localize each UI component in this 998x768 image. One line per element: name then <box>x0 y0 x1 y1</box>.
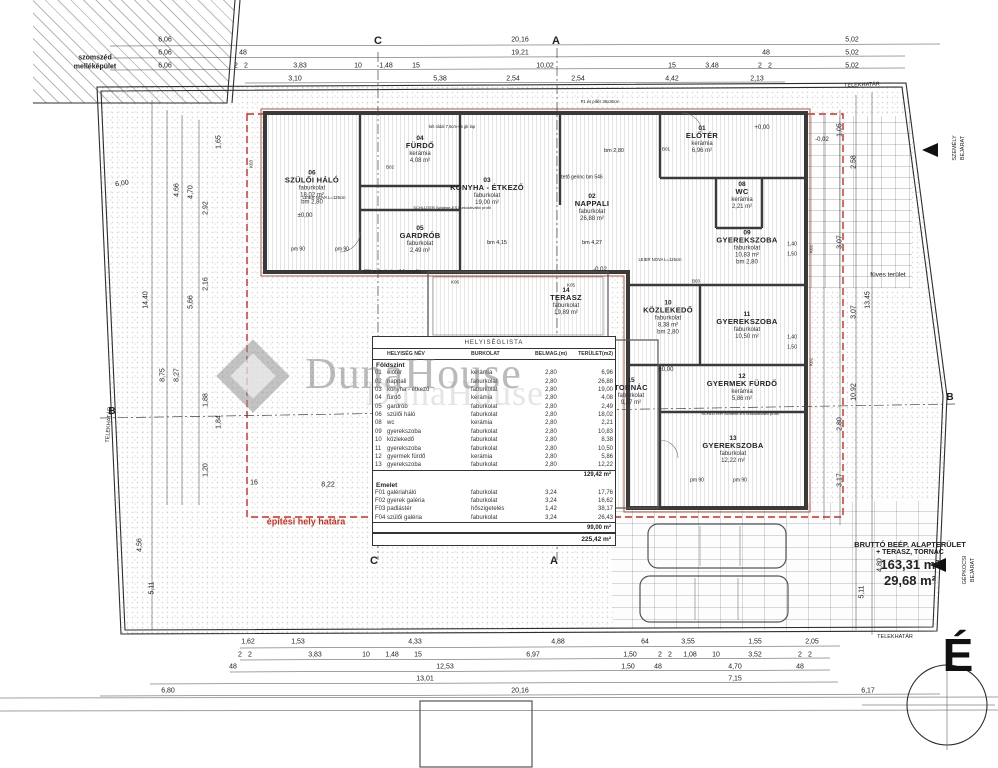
table-cell: 09 <box>375 429 387 435</box>
room-08-ar: 2,21 m² <box>731 204 752 211</box>
table-row: 04fürdőkerámia2,804,08 <box>373 394 615 402</box>
room-15-fin: faburkolat <box>614 393 648 400</box>
dimension-label: 4,56 <box>136 538 143 552</box>
table-subtotal: 99,00 m² <box>373 522 615 532</box>
table-cell: közlekedő <box>387 437 471 443</box>
dimension-label: 1,48 <box>385 651 399 658</box>
annotation-label: bm 4,27 <box>582 241 602 247</box>
annotation-label: B03 <box>692 280 700 285</box>
annotation-label: szomszéd <box>78 54 111 61</box>
dimension-label: 3,52 <box>748 651 762 658</box>
dimension-label: 5,02 <box>845 62 859 69</box>
table-cell: 2,80 <box>531 387 571 393</box>
table-cell: faburkolat <box>471 498 531 504</box>
table-row: 09gyerekszobafaburkolat2,8010,83 <box>373 428 615 436</box>
dimension-label: 48 <box>239 49 247 56</box>
annotation-label: C <box>374 36 382 48</box>
table-cell: 11 <box>375 446 387 452</box>
table-grand-total: 225,42 m² <box>373 532 615 545</box>
table-cell: F01 <box>375 490 387 496</box>
table-row: 13gyerekszobafaburkolat2,8012,22 <box>373 461 615 469</box>
table-cell: 2,21 <box>571 420 613 426</box>
dimension-label: 6,00 <box>115 179 130 188</box>
dimension-label: 1,65 <box>215 135 222 149</box>
room-label-01: 01ELŐTÉRkerámia6,96 m² <box>686 125 718 155</box>
room-table-title: HELYISÉGLISTA <box>373 337 615 349</box>
dimension-label: 8,22 <box>321 481 335 488</box>
table-cell: F04 <box>375 515 387 521</box>
room-01-nm: ELŐTÉR <box>686 133 718 142</box>
room-10-nm: KÖZLEKEDŐ <box>643 307 693 316</box>
room-label-11: 11GYEREKSZOBAfaburkolat10,50 m² <box>716 311 777 341</box>
dimension-label: 2 <box>658 651 662 658</box>
dimension-label: 3,17 <box>836 473 843 487</box>
room-05-ar: 2,49 m² <box>400 248 441 255</box>
floor-plan-canvas: HELYISÉGLISTA HELYISÉG NÉVBURKOLATBELMAG… <box>0 0 998 768</box>
room-15-nm: TORNÁC <box>614 385 648 394</box>
table-cell: 19,00 <box>571 387 613 393</box>
room-label-08: 08WCkerámia2,21 m² <box>731 181 752 211</box>
annotation-label: bm 4,15 <box>487 241 507 247</box>
room-13-fin: faburkolat <box>702 451 763 458</box>
dimension-label: 14,40 <box>142 291 149 309</box>
table-row: 06szülői hálófaburkolat2,8018,02 <box>373 411 615 419</box>
dimension-label: 3,83 <box>308 651 322 658</box>
room-10-ex: bm 2,80 <box>643 329 693 336</box>
table-cell: galériaháló <box>387 490 471 496</box>
dimension-label: 1,20 <box>202 463 209 477</box>
table-cell: kerámia <box>471 395 531 401</box>
dimension-label: 2 <box>238 651 242 658</box>
annotation-label: SZEMÉLY <box>953 135 959 160</box>
annotation-label: építési hely határa <box>267 517 346 526</box>
dimension-label: 4,70 <box>728 663 742 670</box>
table-cell: 2,80 <box>531 462 571 468</box>
dimension-label: 15 <box>414 651 422 658</box>
room-11-fin: faburkolat <box>716 327 777 334</box>
table-cell: faburkolat <box>471 404 531 410</box>
table-column-header: HELYISÉG NÉV <box>387 351 471 357</box>
dimension-label: 2,58 <box>850 155 857 169</box>
table-cell: 2,80 <box>531 454 571 460</box>
table-cell: 16,62 <box>571 498 613 504</box>
table-cell: kerámia <box>471 420 531 426</box>
dimension-label: 20,16 <box>511 36 529 43</box>
room-label-02: 02NAPPALIfaburkolat26,88 m² <box>575 193 609 223</box>
table-row: 02nappalifaburkolat2,8026,88 <box>373 377 615 385</box>
annotation-label: 1,40 <box>787 242 797 247</box>
table-cell: 04 <box>375 395 387 401</box>
dimension-label: 1,50 <box>621 663 635 670</box>
table-column-header <box>375 351 387 357</box>
room-03-ar: 19,00 m² <box>450 200 524 207</box>
dimension-label: 1,84 <box>215 415 222 429</box>
annotation-label: B <box>946 393 953 404</box>
annotation-label: pm 90 <box>291 247 305 252</box>
table-cell: fürdő <box>387 395 471 401</box>
table-row: 10közlekedőfaburkolat2,808,38 <box>373 436 615 444</box>
room-list-table: HELYISÉGLISTA HELYISÉG NÉVBURKOLATBELMAG… <box>372 336 616 546</box>
room-05-fin: faburkolat <box>400 241 441 248</box>
annotation-label: pm 90 <box>733 478 747 483</box>
table-row: 11gyerekszobafaburkolat2,8010,50 <box>373 444 615 452</box>
dimension-label: 2 <box>668 651 672 658</box>
annotation-label: -0,02 <box>593 267 607 273</box>
table-cell: 2,80 <box>531 379 571 385</box>
table-cell: faburkolat <box>471 387 531 393</box>
neighbor-building-hatch <box>33 0 235 103</box>
table-cell: 17,76 <box>571 490 613 496</box>
room-13-ar: 12,22 m² <box>702 458 763 465</box>
table-cell: faburkolat <box>471 437 531 443</box>
room-08-nm: WC <box>731 189 752 198</box>
dimension-label: 2 <box>768 62 772 69</box>
dimension-label: 48 <box>229 663 237 670</box>
table-cell: 2,80 <box>531 429 571 435</box>
room-08-fin: kerámia <box>731 197 752 204</box>
room-10-fin: faburkolat <box>643 316 693 323</box>
dimension-label: 5,66 <box>187 295 194 309</box>
table-cell: konyha - étkező <box>387 387 471 393</box>
room-09-fin: faburkolat <box>716 246 777 253</box>
table-cell: faburkolat <box>471 462 531 468</box>
room-11-ar: 10,50 m² <box>716 334 777 341</box>
room-02-ar: 26,88 m² <box>575 216 609 223</box>
gross-area-line1: BRUTTÓ BEÉP. ALAPTERÜLET <box>828 540 992 549</box>
table-row: F03padlástérhőszigetelés1,4238,17 <box>373 505 615 513</box>
room-11-nm: GYEREKSZOBA <box>716 319 777 328</box>
annotation-label: P1 és pillér 36x36cm <box>581 100 620 104</box>
room-02-fin: faburkolat <box>575 209 609 216</box>
room-01-ar: 6,96 m² <box>686 148 718 155</box>
room-13-nm: GYEREKSZOBA <box>702 443 763 452</box>
dimension-label: 3,55 <box>681 638 695 645</box>
table-cell: gardrób <box>387 404 471 410</box>
room-label-03: 03KONYHA - ÉTKEZŐfaburkolat19,00 m² <box>450 177 524 207</box>
dimension-label: 6,80 <box>161 687 175 694</box>
table-cell: 38,17 <box>571 506 613 512</box>
dimension-label: 19,21 <box>511 49 529 56</box>
table-cell: 2,80 <box>531 446 571 452</box>
table-cell: gyerekszoba <box>387 462 471 468</box>
dimension-label: 2,80 <box>836 417 843 431</box>
dimension-label: 2,13 <box>750 75 764 82</box>
dimension-label: 13,01 <box>416 675 434 682</box>
annotation-label: két oldal 7,5cm-es gk lap <box>429 125 475 129</box>
table-cell: 06 <box>375 412 387 418</box>
table-row: 12gyermek fürdőkerámia2,805,86 <box>373 453 615 461</box>
table-row: 05gardróbfaburkolat2,802,49 <box>373 403 615 411</box>
annotation-label: BEJÁRAT <box>961 136 967 160</box>
table-cell: gyerekszoba <box>387 446 471 452</box>
room-12-fin: kerámia <box>707 389 778 396</box>
room-01-fin: kerámia <box>686 141 718 148</box>
gross-area-value1: 163,31 m² <box>828 557 992 572</box>
dimension-label: 48 <box>654 663 662 670</box>
room-04-ar: 4,08 m² <box>406 158 434 165</box>
table-cell: 10 <box>375 437 387 443</box>
north-symbol-letter: É <box>943 628 974 682</box>
table-cell: 2,80 <box>531 395 571 401</box>
dimension-label: 6,06 <box>158 62 172 69</box>
table-cell: kerámia <box>471 454 531 460</box>
annotation-label: ±0,00 <box>659 367 674 373</box>
room-14-fin: faburkolat <box>550 303 582 310</box>
dimension-label: 4,42 <box>665 75 679 82</box>
room-12-ar: 5,86 m² <box>707 396 778 403</box>
table-row: 03konyha - étkezőfaburkolat2,8019,00 <box>373 386 615 394</box>
table-cell: F03 <box>375 506 387 512</box>
annotation-label: K02 <box>810 245 815 253</box>
table-column-header: BURKOLAT <box>471 351 531 357</box>
room-label-14: 14TERASZfaburkolat19,89 m² <box>550 287 582 317</box>
table-row: 01előtérkerámia2,806,96 <box>373 369 615 377</box>
annotation-label: bm 2,80 <box>604 149 624 155</box>
dimension-label: 1,55 <box>748 638 762 645</box>
table-cell: 2,80 <box>531 412 571 418</box>
table-cell: 05 <box>375 404 387 410</box>
table-cell: 26,88 <box>571 379 613 385</box>
room-06-ex: bm 2,80 <box>285 199 339 206</box>
dimension-label: 1,50 <box>623 651 637 658</box>
dimension-label: 10,02 <box>536 62 554 69</box>
dimension-label: 4,70 <box>187 185 194 199</box>
table-cell: gyerekszoba <box>387 429 471 435</box>
table-cell: 1,42 <box>531 506 571 512</box>
dimension-label: 13,45 <box>864 291 871 309</box>
table-row: F01galériahálófaburkolat3,2417,76 <box>373 489 615 497</box>
room-03-nm: KONYHA - ÉTKEZŐ <box>450 185 524 194</box>
dimension-label: 3,83 <box>293 62 307 69</box>
room-label-10: 10KÖZLEKEDŐfaburkolat8,38 m²bm 2,80 <box>643 300 693 337</box>
dimension-label: 1,48 <box>379 62 393 69</box>
dimension-label: 1,62 <box>241 638 255 645</box>
room-label-13: 13GYEREKSZOBAfaburkolat12,22 m² <box>702 435 763 465</box>
room-06-fin: faburkolat <box>285 186 339 193</box>
table-cell: 10,83 <box>571 429 613 435</box>
room-14-ar: 19,89 m² <box>550 310 582 317</box>
annotation-label: B02 <box>386 166 394 171</box>
table-cell: kerámia <box>471 370 531 376</box>
table-section-Földszint: Földszint <box>373 360 615 369</box>
table-cell: 10,50 <box>571 446 613 452</box>
table-cell: 2,80 <box>531 420 571 426</box>
table-cell: előtér <box>387 370 471 376</box>
dimension-label: 2 <box>248 651 252 658</box>
table-cell: faburkolat <box>471 446 531 452</box>
annotation-label: SCHLÜTER Schiene-ES burkolatváltó profil <box>701 412 778 416</box>
room-label-15: 15TORNÁCfaburkolat9,37 m² <box>614 377 648 407</box>
annotation-label: 1,50 <box>787 345 797 350</box>
dimension-label: 6,97 <box>526 651 540 658</box>
table-cell: 2,80 <box>531 404 571 410</box>
table-cell: 4,08 <box>571 395 613 401</box>
dimension-label: 10 <box>362 651 370 658</box>
room-04-nm: FÜRDŐ <box>406 143 434 152</box>
dimension-label: 1,08 <box>683 651 697 658</box>
table-cell: 3,24 <box>531 498 571 504</box>
table-cell: 3,24 <box>531 490 571 496</box>
room-15-ar: 9,37 m² <box>614 400 648 407</box>
dimension-label: 2,92 <box>202 201 209 215</box>
dimension-label: 15 <box>668 62 676 69</box>
table-cell: szülői galéria <box>387 515 471 521</box>
annotation-label: B01 <box>662 148 670 153</box>
table-cell: 8,38 <box>571 437 613 443</box>
dimension-label: 15 <box>412 62 420 69</box>
room-06-nm: SZÜLŐI HÁLÓ <box>285 177 339 186</box>
dimension-label: 12,53 <box>436 663 454 670</box>
dimension-label: 1,53 <box>291 638 305 645</box>
table-cell: 08 <box>375 420 387 426</box>
dimension-label: 4,33 <box>408 638 422 645</box>
table-cell: F02 <box>375 498 387 504</box>
table-cell: 12,22 <box>571 462 613 468</box>
table-cell: gyermek fürdő <box>387 454 471 460</box>
room-label-06: 06SZÜLŐI HÁLÓfaburkolat18,02 m²bm 2,80 <box>285 170 339 207</box>
room-14-nm: TERASZ <box>550 295 582 304</box>
dimension-label: 5,02 <box>845 36 859 43</box>
dimension-label: 10 <box>712 651 720 658</box>
table-cell: 02 <box>375 379 387 385</box>
room-10-ar: 8,38 m² <box>643 323 693 330</box>
dimension-label: 5,11 <box>148 581 155 594</box>
table-cell: 01 <box>375 370 387 376</box>
dimension-label: 8,27 <box>173 368 180 382</box>
dimension-label: 1,05 <box>836 123 843 137</box>
table-cell: padlástér <box>387 506 471 512</box>
room-12-nm: GYERMEK FÜRDŐ <box>707 381 778 390</box>
table-subtotal: 129,42 m² <box>373 470 615 480</box>
dimension-label: 6,06 <box>158 36 172 43</box>
annotation-label: -0,02 <box>815 137 829 143</box>
table-cell: szülői háló <box>387 412 471 418</box>
room-09-ar: 10,83 m² <box>716 253 777 260</box>
table-row: 08wckerámia2,802,21 <box>373 419 615 427</box>
room-05-nm: GARDRÓB <box>400 233 441 242</box>
dimension-label: 2,16 <box>202 277 209 291</box>
table-cell: 3,24 <box>531 515 571 521</box>
table-column-header: BELMAG.(m) <box>531 351 571 357</box>
dimension-label: 5,02 <box>845 49 859 56</box>
annotation-label: TELEKHATÁR <box>844 82 880 89</box>
room-09-ex: bm 2,80 <box>716 259 777 266</box>
dimension-label: 3,48 <box>705 62 719 69</box>
table-section-Emelet: Emelet <box>373 480 615 489</box>
table-cell: 26,43 <box>571 515 613 521</box>
annotation-label: C <box>370 556 378 568</box>
dimension-label: 10,92 <box>850 383 857 401</box>
table-cell: faburkolat <box>471 379 531 385</box>
room-02-nm: NAPPALI <box>575 201 609 210</box>
table-cell: faburkolat <box>471 429 531 435</box>
annotation-label: A <box>550 556 558 568</box>
gross-area-block: BRUTTÓ BEÉP. ALAPTERÜLET + TERASZ, TORNÁ… <box>828 540 992 588</box>
dimension-label: 48 <box>762 49 770 56</box>
dimension-label: 16 <box>250 479 258 486</box>
annotation-label: tető gerinc bm 546 <box>561 175 602 180</box>
table-cell: faburkolat <box>471 490 531 496</box>
dimension-label: 7,15 <box>728 675 742 682</box>
annotation-label: K06 <box>451 281 459 286</box>
dimension-label: 3,07 <box>850 305 857 319</box>
dimension-label: 10 <box>354 62 362 69</box>
room-label-05: 05GARDRÓBfaburkolat2,49 m² <box>400 225 441 255</box>
dimension-label: 2 <box>798 651 802 658</box>
table-cell: hőszigetelés <box>471 506 531 512</box>
annotation-label: Ø32 andezit zúzottkő szegély <box>363 270 420 275</box>
dimension-label: 2 <box>758 62 762 69</box>
dimension-label: 6,17 <box>861 687 875 694</box>
room-table-header: HELYISÉG NÉVBURKOLATBELMAG.(m)TERÜLET(m2… <box>373 349 615 360</box>
dimension-label: 48 <box>796 663 804 670</box>
dimension-label: 1,88 <box>202 393 209 407</box>
room-label-09: 09GYEREKSZOBAfaburkolat10,83 m²bm 2,80 <box>716 230 777 267</box>
annotation-label: TELEKHATÁR <box>877 635 913 641</box>
table-cell: 5,86 <box>571 454 613 460</box>
dimension-label: 2 <box>244 62 248 69</box>
annotation-label: pm 90 <box>335 247 349 252</box>
table-cell: gyerek galéria <box>387 498 471 504</box>
table-cell: 2,49 <box>571 404 613 410</box>
table-cell: nappali <box>387 379 471 385</box>
room-label-04: 04FÜRDŐkerámia4,08 m² <box>406 135 434 165</box>
dimension-label: 8,75 <box>159 368 166 382</box>
room-06-ar: 18,02 m² <box>285 193 339 200</box>
annotation-label: 1,50 <box>787 252 797 257</box>
table-column-header: TERÜLET(m2) <box>571 351 613 357</box>
table-cell: faburkolat <box>471 515 531 521</box>
annotation-label: K02 <box>810 358 815 366</box>
dimension-label: 3,10 <box>288 75 302 82</box>
annotation-label: A <box>552 36 560 48</box>
table-cell: faburkolat <box>471 412 531 418</box>
annotation-label: melléképület <box>74 63 116 70</box>
gross-area-value2: 29,68 m² <box>828 573 992 588</box>
annotation-label: +0,00 <box>754 125 769 131</box>
dimension-label: 2 <box>808 651 812 658</box>
room-04-fin: kerámia <box>406 151 434 158</box>
table-cell: 2,80 <box>531 370 571 376</box>
room-09-nm: GYEREKSZOBA <box>716 237 777 246</box>
annotation-label: füves terület <box>870 273 905 280</box>
annotation-label: B <box>108 407 115 418</box>
gross-area-line2: + TERASZ, TORNÁC <box>828 549 992 556</box>
dimension-label: 2,05 <box>805 638 819 645</box>
table-cell: wc <box>387 420 471 426</box>
dimension-label: 2 <box>234 62 238 69</box>
room-label-12: 12GYERMEK FÜRDŐkerámia5,86 m² <box>707 373 778 403</box>
table-cell: 12 <box>375 454 387 460</box>
table-row: F04szülői galériafaburkolat3,2426,43 <box>373 514 615 522</box>
table-cell: 2,80 <box>531 437 571 443</box>
dimension-label: 3,07 <box>836 235 843 249</box>
table-cell: 18,02 <box>571 412 613 418</box>
table-row: F02gyerek galériafaburkolat3,2416,62 <box>373 497 615 505</box>
dimension-label: 64 <box>641 638 649 645</box>
table-cell: 13 <box>375 462 387 468</box>
table-cell: 03 <box>375 387 387 393</box>
dimension-label: 20,16 <box>511 687 529 694</box>
annotation-label: LEIER NOVA L=125cm <box>638 258 681 262</box>
dimension-label: 4,88 <box>551 638 565 645</box>
dimension-label: 5,38 <box>433 75 447 82</box>
annotation-label: K03 <box>250 160 255 168</box>
dimension-label: 2,54 <box>571 75 585 82</box>
room-table-body: Földszint01előtérkerámia2,806,9602nappal… <box>373 360 615 545</box>
dimension-label: 6,06 <box>158 49 172 56</box>
room-03-fin: faburkolat <box>450 193 524 200</box>
